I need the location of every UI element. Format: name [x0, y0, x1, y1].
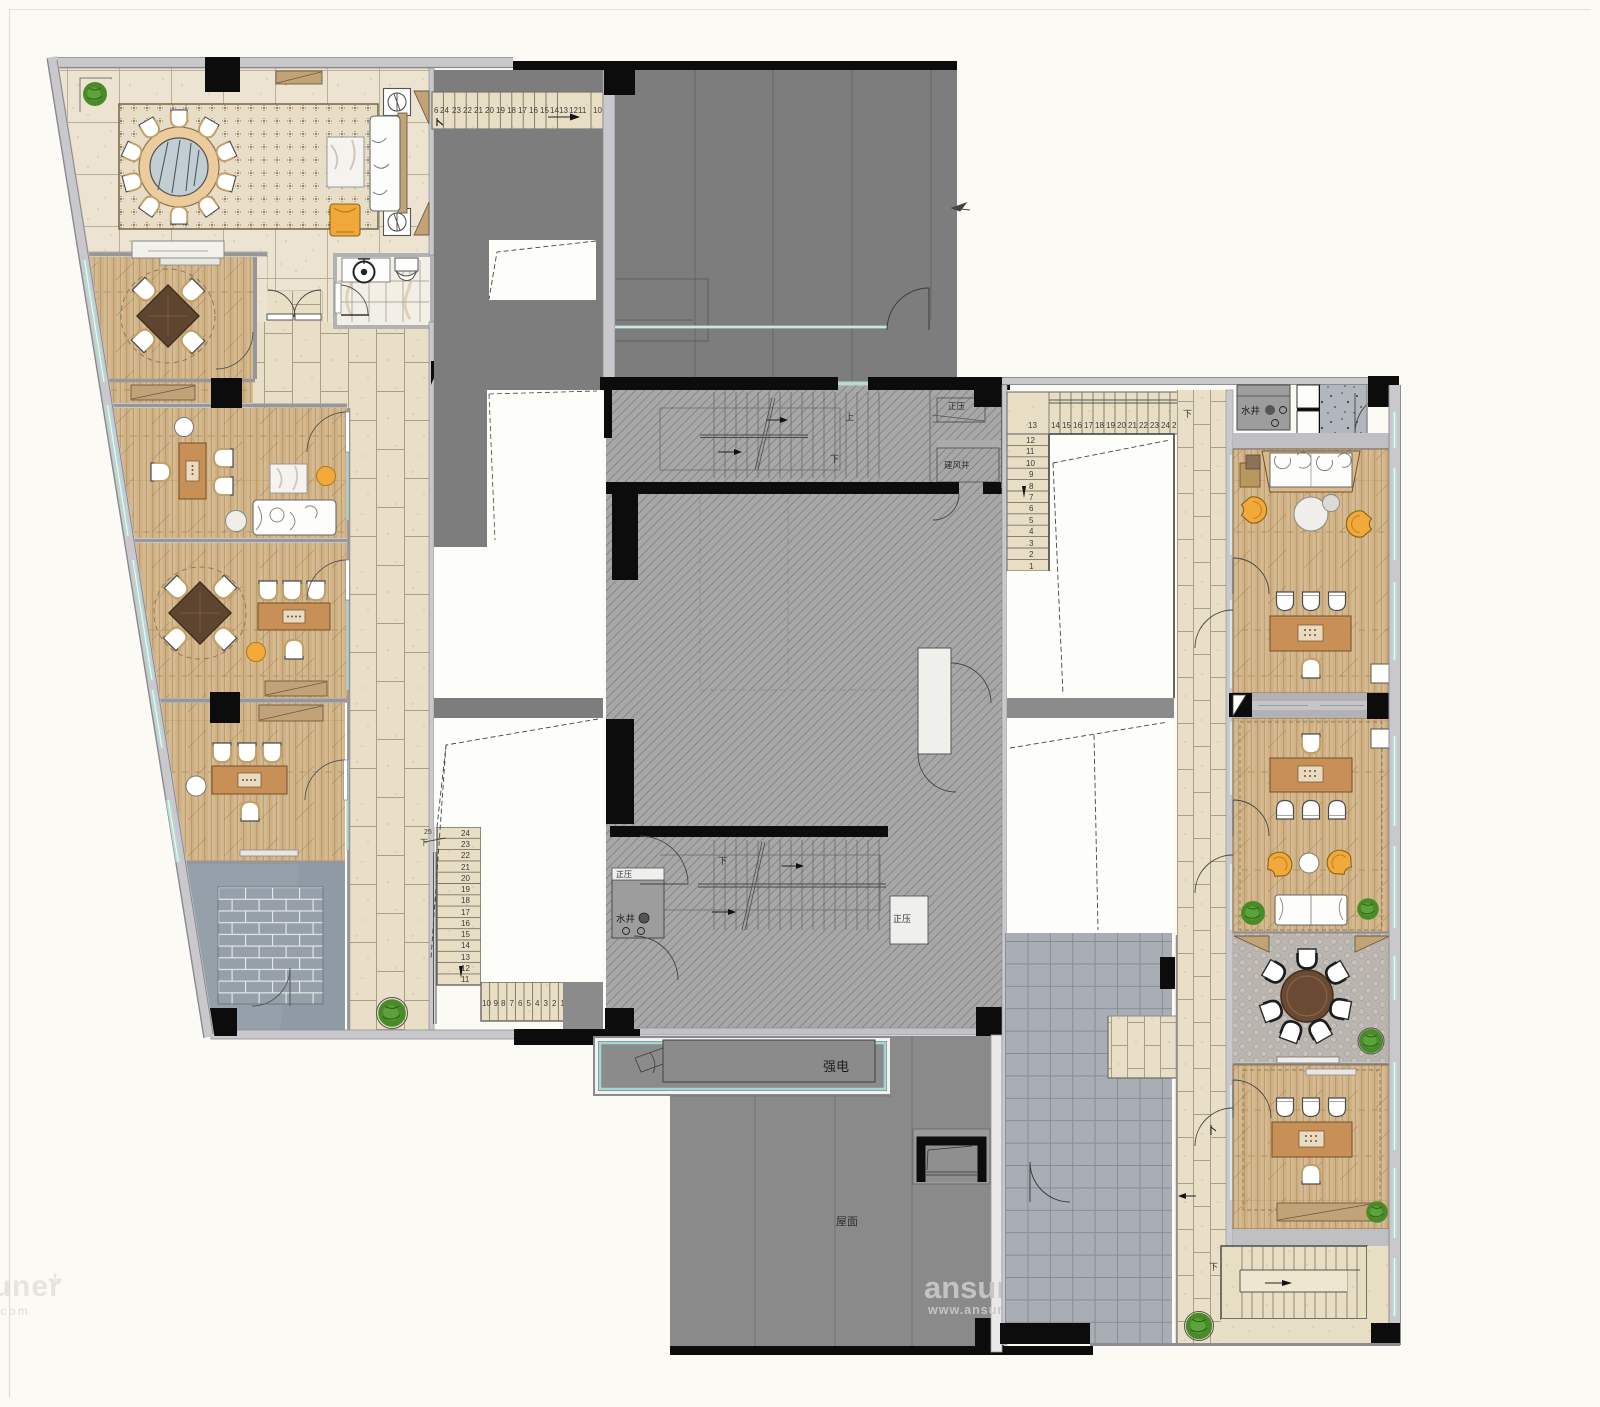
svg-text:7: 7: [510, 999, 515, 1008]
svg-text:21: 21: [474, 106, 483, 115]
svg-text:13: 13: [461, 953, 470, 962]
svg-text:下: 下: [1209, 1262, 1218, 1272]
svg-text:17: 17: [518, 106, 527, 115]
svg-text:17: 17: [461, 908, 470, 917]
svg-text:9: 9: [494, 999, 499, 1008]
svg-text:✢: ✢: [48, 1271, 62, 1290]
svg-text:6: 6: [518, 999, 523, 1008]
svg-text:3: 3: [544, 999, 549, 1008]
svg-text:强电: 强电: [823, 1059, 849, 1074]
svg-text:8: 8: [1029, 482, 1034, 491]
svg-text:10: 10: [482, 999, 491, 1008]
svg-text:25: 25: [424, 829, 432, 836]
svg-text:24: 24: [440, 106, 449, 115]
svg-text:11: 11: [1026, 447, 1035, 456]
svg-text:24: 24: [1161, 421, 1170, 430]
svg-text:正压: 正压: [893, 914, 911, 924]
svg-text:8: 8: [501, 999, 506, 1008]
svg-text:14: 14: [1051, 421, 1060, 430]
svg-text:下: 下: [420, 838, 428, 847]
svg-text:24: 24: [461, 829, 470, 838]
svg-text:22: 22: [461, 851, 470, 860]
svg-text:12: 12: [1026, 436, 1035, 445]
svg-text:5: 5: [527, 999, 532, 1008]
svg-text:2: 2: [552, 999, 557, 1008]
svg-text:13: 13: [1028, 421, 1037, 430]
svg-text:4: 4: [535, 999, 540, 1008]
svg-text:13: 13: [559, 106, 568, 115]
svg-text:20: 20: [1117, 421, 1126, 430]
svg-text:2: 2: [1029, 550, 1034, 559]
svg-text:15: 15: [461, 930, 470, 939]
svg-text:15: 15: [1062, 421, 1071, 430]
svg-text:16: 16: [461, 919, 470, 928]
svg-text:10: 10: [593, 106, 602, 115]
svg-text:20: 20: [461, 874, 470, 883]
svg-text:18: 18: [507, 106, 516, 115]
svg-text:22: 22: [463, 106, 472, 115]
svg-text:正压: 正压: [616, 870, 632, 879]
svg-text:建风井: 建风井: [944, 460, 970, 470]
svg-text:21: 21: [1128, 421, 1137, 430]
svg-text:21: 21: [461, 863, 470, 872]
svg-text:11: 11: [461, 975, 470, 984]
svg-text:7: 7: [1029, 493, 1034, 502]
svg-text:18: 18: [461, 896, 470, 905]
svg-text:下: 下: [718, 856, 727, 866]
svg-text:19: 19: [496, 106, 505, 115]
svg-text:3: 3: [1029, 539, 1034, 548]
svg-text:水井: 水井: [616, 913, 635, 925]
svg-text:18: 18: [1095, 421, 1104, 430]
svg-text:15: 15: [540, 106, 549, 115]
svg-text:6: 6: [1029, 504, 1034, 513]
svg-text:屋面: 屋面: [836, 1215, 858, 1228]
svg-text:16: 16: [1073, 421, 1082, 430]
svg-text:20: 20: [485, 106, 494, 115]
svg-text:23: 23: [1150, 421, 1159, 430]
svg-text:17: 17: [1084, 421, 1093, 430]
svg-text:11: 11: [578, 106, 587, 115]
svg-text:9: 9: [1029, 470, 1034, 479]
svg-text:19: 19: [461, 885, 470, 894]
svg-text:6: 6: [434, 106, 439, 115]
svg-text:正压: 正压: [948, 401, 966, 411]
svg-text:23: 23: [452, 106, 461, 115]
svg-text:10: 10: [1026, 459, 1035, 468]
svg-text:下: 下: [1183, 409, 1192, 419]
svg-text:下: 下: [830, 454, 839, 464]
svg-text:上: 上: [845, 412, 854, 422]
svg-text:www.ansuner.com: www.ansuner.com: [0, 1304, 29, 1318]
svg-text:5: 5: [1029, 516, 1034, 525]
svg-text:23: 23: [461, 840, 470, 849]
svg-text:19: 19: [1106, 421, 1115, 430]
svg-text:14: 14: [461, 941, 470, 950]
svg-text:4: 4: [1029, 527, 1034, 536]
svg-text:1: 1: [1029, 562, 1034, 571]
svg-text:16: 16: [529, 106, 538, 115]
svg-text:22: 22: [1139, 421, 1148, 430]
svg-text:水井: 水井: [1241, 405, 1260, 417]
